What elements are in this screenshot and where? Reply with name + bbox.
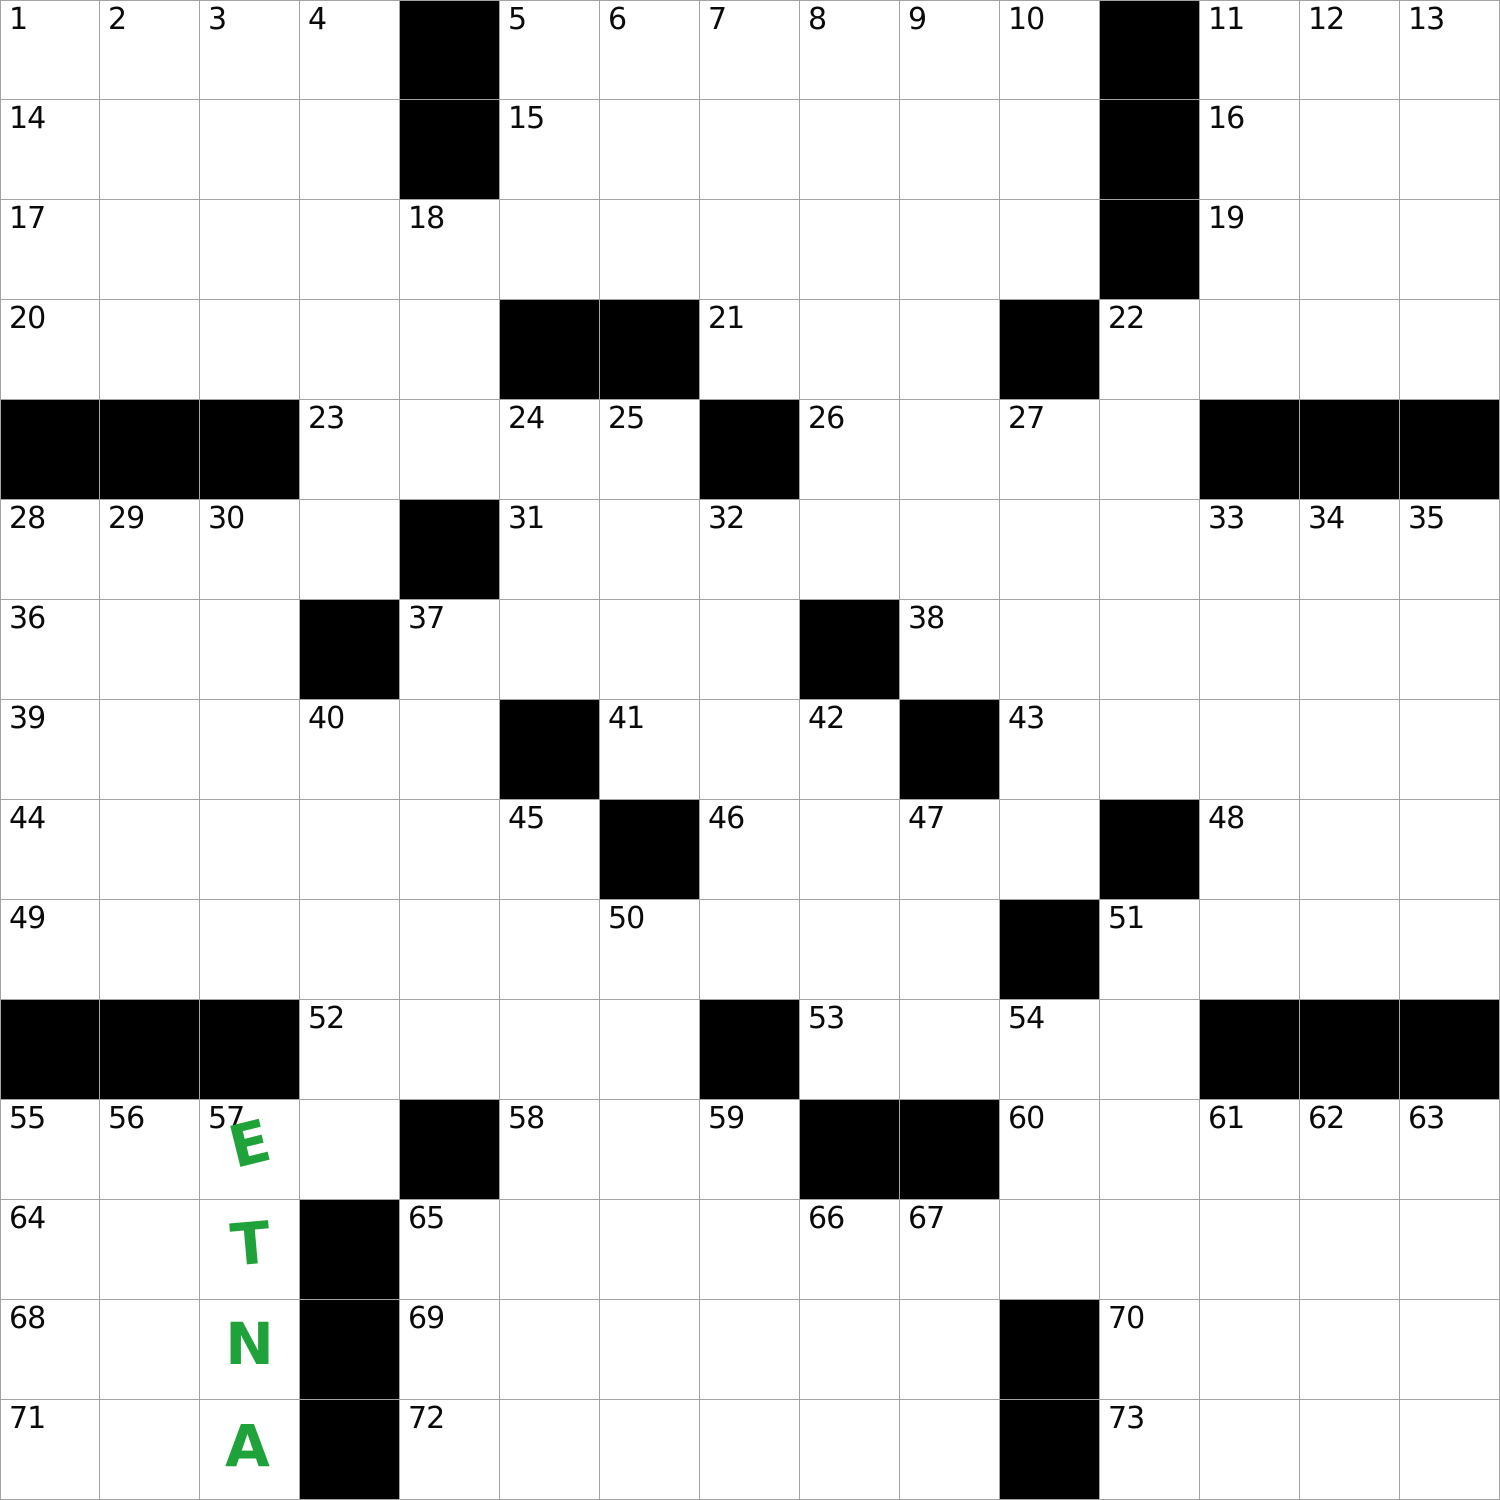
white-cell[interactable]: 58 xyxy=(500,1100,600,1200)
cell-number: 7 xyxy=(708,5,726,35)
cell-number: 49 xyxy=(9,904,45,934)
white-cell[interactable]: 72 xyxy=(400,1400,500,1500)
white-cell[interactable] xyxy=(1000,200,1100,300)
white-cell[interactable]: 53 xyxy=(800,1000,900,1100)
white-cell[interactable] xyxy=(900,1000,1000,1100)
white-cell[interactable]: 57E xyxy=(200,1100,300,1200)
black-cell xyxy=(100,1000,200,1100)
white-cell[interactable] xyxy=(1400,1200,1500,1300)
white-cell[interactable] xyxy=(500,900,600,1000)
white-cell[interactable] xyxy=(1400,900,1500,1000)
cell-number: 27 xyxy=(1008,404,1044,434)
white-cell[interactable] xyxy=(1100,600,1200,700)
white-cell[interactable] xyxy=(400,300,500,400)
white-cell[interactable] xyxy=(200,900,300,1000)
black-cell xyxy=(1200,1000,1300,1100)
cell-number: 68 xyxy=(9,1304,45,1334)
white-cell[interactable] xyxy=(900,400,1000,500)
cell-number: 11 xyxy=(1208,5,1244,35)
white-cell[interactable] xyxy=(1300,800,1400,900)
white-cell[interactable]: 28 xyxy=(0,500,100,600)
white-cell[interactable]: 39 xyxy=(0,700,100,800)
white-cell[interactable]: 42 xyxy=(800,700,900,800)
cell-number: 65 xyxy=(408,1204,444,1234)
cell-number: 56 xyxy=(108,1104,144,1134)
white-cell[interactable]: 12 xyxy=(1300,0,1400,100)
white-cell[interactable] xyxy=(600,200,700,300)
white-cell[interactable] xyxy=(800,200,900,300)
white-cell[interactable] xyxy=(1400,1300,1500,1400)
black-cell xyxy=(1000,900,1100,1000)
white-cell[interactable]: 52 xyxy=(300,1000,400,1100)
white-cell[interactable]: 73 xyxy=(1100,1400,1200,1500)
white-cell[interactable] xyxy=(1200,1400,1300,1500)
white-cell[interactable]: 22 xyxy=(1100,300,1200,400)
white-cell[interactable] xyxy=(100,1200,200,1300)
cell-number: 69 xyxy=(408,1304,444,1334)
white-cell[interactable]: 20 xyxy=(0,300,100,400)
white-cell[interactable] xyxy=(200,700,300,800)
white-cell[interactable]: 67 xyxy=(900,1200,1000,1300)
white-cell[interactable] xyxy=(1400,700,1500,800)
black-cell xyxy=(100,400,200,500)
white-cell[interactable]: 51 xyxy=(1100,900,1200,1000)
white-cell[interactable]: 19 xyxy=(1200,200,1300,300)
white-cell[interactable]: 55 xyxy=(0,1100,100,1200)
white-cell[interactable] xyxy=(1400,1400,1500,1500)
cell-number: 59 xyxy=(708,1104,744,1134)
white-cell[interactable] xyxy=(1300,900,1400,1000)
cell-number: 55 xyxy=(9,1104,45,1134)
cell-number: 41 xyxy=(608,704,644,734)
white-cell[interactable] xyxy=(1300,200,1400,300)
black-cell xyxy=(0,400,100,500)
white-cell[interactable] xyxy=(600,1300,700,1400)
cell-number: 31 xyxy=(508,504,544,534)
white-cell[interactable] xyxy=(700,1400,800,1500)
cell-number: 15 xyxy=(508,104,544,134)
white-cell[interactable] xyxy=(800,1300,900,1400)
crossword-grid: 1234567891011121314151617181920212223242… xyxy=(0,0,1500,1500)
white-cell[interactable] xyxy=(100,1400,200,1500)
white-cell[interactable] xyxy=(1200,600,1300,700)
white-cell[interactable] xyxy=(600,100,700,200)
white-cell[interactable]: 43 xyxy=(1000,700,1100,800)
white-cell[interactable]: T xyxy=(200,1200,300,1300)
white-cell[interactable]: 41 xyxy=(600,700,700,800)
white-cell[interactable] xyxy=(600,1400,700,1500)
white-cell[interactable] xyxy=(1300,1400,1400,1500)
white-cell[interactable] xyxy=(800,300,900,400)
white-cell[interactable] xyxy=(200,300,300,400)
white-cell[interactable]: 26 xyxy=(800,400,900,500)
white-cell[interactable] xyxy=(200,100,300,200)
white-cell[interactable] xyxy=(500,1300,600,1400)
white-cell[interactable] xyxy=(1400,200,1500,300)
white-cell[interactable] xyxy=(1300,300,1400,400)
white-cell[interactable] xyxy=(700,700,800,800)
white-cell[interactable] xyxy=(100,900,200,1000)
cell-number: 2 xyxy=(108,5,126,35)
cell-number: 32 xyxy=(708,504,744,534)
white-cell[interactable] xyxy=(200,800,300,900)
cell-number: 13 xyxy=(1408,5,1444,35)
cell-number: 1 xyxy=(9,5,27,35)
white-cell[interactable] xyxy=(700,1300,800,1400)
white-cell[interactable] xyxy=(900,100,1000,200)
cell-number: 34 xyxy=(1308,504,1344,534)
cell-number: 16 xyxy=(1208,104,1244,134)
white-cell[interactable]: 62 xyxy=(1300,1100,1400,1200)
white-cell[interactable]: 10 xyxy=(1000,0,1100,100)
cell-number: 35 xyxy=(1408,504,1444,534)
white-cell[interactable]: 66 xyxy=(800,1200,900,1300)
cell-number: 52 xyxy=(308,1004,344,1034)
white-cell[interactable]: 17 xyxy=(0,200,100,300)
white-cell[interactable] xyxy=(1400,800,1500,900)
white-cell[interactable] xyxy=(800,500,900,600)
white-cell[interactable]: 25 xyxy=(600,400,700,500)
white-cell[interactable] xyxy=(400,400,500,500)
white-cell[interactable]: 49 xyxy=(0,900,100,1000)
white-cell[interactable]: 70 xyxy=(1100,1300,1200,1400)
white-cell[interactable]: 23 xyxy=(300,400,400,500)
cell-number: 73 xyxy=(1108,1404,1144,1434)
black-cell xyxy=(400,500,500,600)
white-cell[interactable]: 7 xyxy=(700,0,800,100)
cell-number: 39 xyxy=(9,704,45,734)
white-cell[interactable]: 8 xyxy=(800,0,900,100)
white-cell[interactable] xyxy=(1100,1200,1200,1300)
cell-number: 25 xyxy=(608,404,644,434)
cell-number: 21 xyxy=(708,304,744,334)
cell-number: 12 xyxy=(1308,5,1344,35)
white-cell[interactable] xyxy=(1000,500,1100,600)
white-cell[interactable] xyxy=(100,700,200,800)
white-cell[interactable] xyxy=(1000,600,1100,700)
black-cell xyxy=(400,0,500,100)
white-cell[interactable] xyxy=(1400,300,1500,400)
white-cell[interactable]: 69 xyxy=(400,1300,500,1400)
cell-number: 19 xyxy=(1208,204,1244,234)
white-cell[interactable]: 24 xyxy=(500,400,600,500)
white-cell[interactable] xyxy=(1100,1100,1200,1200)
cell-number: 48 xyxy=(1208,804,1244,834)
white-cell[interactable] xyxy=(400,700,500,800)
black-cell xyxy=(500,300,600,400)
cell-number: 53 xyxy=(808,1004,844,1034)
white-cell[interactable]: 2 xyxy=(100,0,200,100)
cell-number: 42 xyxy=(808,704,844,734)
cell-number: 64 xyxy=(9,1204,45,1234)
black-cell xyxy=(1000,1400,1100,1500)
white-cell[interactable] xyxy=(300,300,400,400)
black-cell xyxy=(1300,400,1400,500)
black-cell xyxy=(500,700,600,800)
white-cell[interactable]: 56 xyxy=(100,1100,200,1200)
white-cell[interactable]: 3 xyxy=(200,0,300,100)
cell-number: 40 xyxy=(308,704,344,734)
white-cell[interactable] xyxy=(900,500,1000,600)
cell-number: 66 xyxy=(808,1204,844,1234)
black-cell xyxy=(800,600,900,700)
white-cell[interactable] xyxy=(600,500,700,600)
white-cell[interactable] xyxy=(700,900,800,1000)
black-cell xyxy=(1100,0,1200,100)
cell-number: 23 xyxy=(308,404,344,434)
white-cell[interactable] xyxy=(500,600,600,700)
white-cell[interactable]: 71 xyxy=(0,1400,100,1500)
cell-number: 36 xyxy=(9,604,45,634)
white-cell[interactable] xyxy=(800,800,900,900)
cell-number: 14 xyxy=(9,104,45,134)
cell-number: 30 xyxy=(208,504,244,534)
cell-number: 6 xyxy=(608,5,626,35)
cell-number: 24 xyxy=(508,404,544,434)
black-cell xyxy=(900,700,1000,800)
white-cell[interactable]: 18 xyxy=(400,200,500,300)
white-cell[interactable] xyxy=(300,1100,400,1200)
white-cell[interactable] xyxy=(900,900,1000,1000)
black-cell xyxy=(600,300,700,400)
cell-number: 3 xyxy=(208,5,226,35)
white-cell[interactable]: 9 xyxy=(900,0,1000,100)
white-cell[interactable] xyxy=(100,200,200,300)
cell-number: 61 xyxy=(1208,1104,1244,1134)
black-cell xyxy=(400,1100,500,1200)
cell-number: 4 xyxy=(308,5,326,35)
white-cell[interactable] xyxy=(500,200,600,300)
black-cell xyxy=(1400,400,1500,500)
black-cell xyxy=(700,400,800,500)
white-cell[interactable] xyxy=(100,1300,200,1400)
white-cell[interactable] xyxy=(600,600,700,700)
white-cell[interactable] xyxy=(700,600,800,700)
white-cell[interactable] xyxy=(500,1200,600,1300)
black-cell xyxy=(1100,800,1200,900)
white-cell[interactable]: 4 xyxy=(300,0,400,100)
white-cell[interactable]: 61 xyxy=(1200,1100,1300,1200)
white-cell[interactable] xyxy=(1300,700,1400,800)
cell-number: 33 xyxy=(1208,504,1244,534)
white-cell[interactable]: N xyxy=(200,1300,300,1400)
cell-number: 62 xyxy=(1308,1104,1344,1134)
white-cell[interactable] xyxy=(200,200,300,300)
black-cell xyxy=(700,1000,800,1100)
white-cell[interactable]: 44 xyxy=(0,800,100,900)
white-cell[interactable] xyxy=(1200,300,1300,400)
white-cell[interactable] xyxy=(400,1000,500,1100)
white-cell[interactable]: 54 xyxy=(1000,1000,1100,1100)
black-cell xyxy=(1400,1000,1500,1100)
white-cell[interactable] xyxy=(1300,1200,1400,1300)
black-cell xyxy=(400,100,500,200)
cell-number: 22 xyxy=(1108,304,1144,334)
white-cell[interactable] xyxy=(500,1000,600,1100)
black-cell xyxy=(200,400,300,500)
cell-number: 63 xyxy=(1408,1104,1444,1134)
cell-number: 20 xyxy=(9,304,45,334)
cell-number: 18 xyxy=(408,204,444,234)
white-cell[interactable]: 11 xyxy=(1200,0,1300,100)
cell-number: 50 xyxy=(608,904,644,934)
cell-number: 5 xyxy=(508,5,526,35)
white-cell[interactable] xyxy=(600,1100,700,1200)
white-cell[interactable] xyxy=(1200,1200,1300,1300)
white-cell[interactable] xyxy=(500,1400,600,1500)
black-cell xyxy=(1000,1300,1100,1400)
white-cell[interactable]: 59 xyxy=(700,1100,800,1200)
black-cell xyxy=(1000,300,1100,400)
white-cell[interactable] xyxy=(800,1400,900,1500)
white-cell[interactable] xyxy=(900,300,1000,400)
white-cell[interactable]: 63 xyxy=(1400,1100,1500,1200)
white-cell[interactable]: 45 xyxy=(500,800,600,900)
white-cell[interactable]: 21 xyxy=(700,300,800,400)
white-cell[interactable] xyxy=(200,600,300,700)
white-cell[interactable]: 34 xyxy=(1300,500,1400,600)
white-cell[interactable] xyxy=(100,100,200,200)
white-cell[interactable]: 47 xyxy=(900,800,1000,900)
white-cell[interactable] xyxy=(700,200,800,300)
white-cell[interactable]: 27 xyxy=(1000,400,1100,500)
white-cell[interactable] xyxy=(600,1000,700,1100)
white-cell[interactable] xyxy=(1300,100,1400,200)
white-cell[interactable]: 46 xyxy=(700,800,800,900)
white-cell[interactable] xyxy=(1300,1300,1400,1400)
white-cell[interactable]: 5 xyxy=(500,0,600,100)
white-cell[interactable] xyxy=(300,500,400,600)
cell-number: 54 xyxy=(1008,1004,1044,1034)
entry-letter: T xyxy=(197,1190,304,1297)
white-cell[interactable]: A xyxy=(200,1400,300,1500)
white-cell[interactable]: 48 xyxy=(1200,800,1300,900)
cell-number: 9 xyxy=(908,5,926,35)
white-cell[interactable] xyxy=(900,1300,1000,1400)
cell-number: 26 xyxy=(808,404,844,434)
cell-number: 47 xyxy=(908,804,944,834)
white-cell[interactable]: 6 xyxy=(600,0,700,100)
white-cell[interactable] xyxy=(1200,1300,1300,1400)
white-cell[interactable]: 32 xyxy=(700,500,800,600)
white-cell[interactable]: 33 xyxy=(1200,500,1300,600)
white-cell[interactable]: 16 xyxy=(1200,100,1300,200)
white-cell[interactable]: 65 xyxy=(400,1200,500,1300)
cell-number: 44 xyxy=(9,804,45,834)
white-cell[interactable] xyxy=(1000,100,1100,200)
black-cell xyxy=(300,1200,400,1300)
white-cell[interactable] xyxy=(700,100,800,200)
black-cell xyxy=(300,1400,400,1500)
white-cell[interactable] xyxy=(300,800,400,900)
cell-number: 29 xyxy=(108,504,144,534)
black-cell xyxy=(800,1100,900,1200)
white-cell[interactable] xyxy=(1000,800,1100,900)
white-cell[interactable] xyxy=(1300,600,1400,700)
white-cell[interactable]: 37 xyxy=(400,600,500,700)
white-cell[interactable] xyxy=(1200,900,1300,1000)
white-cell[interactable]: 1 xyxy=(0,0,100,100)
black-cell xyxy=(1300,1000,1400,1100)
black-cell xyxy=(900,1100,1000,1200)
black-cell xyxy=(1200,400,1300,500)
white-cell[interactable] xyxy=(400,800,500,900)
cell-number: 37 xyxy=(408,604,444,634)
white-cell[interactable]: 15 xyxy=(500,100,600,200)
white-cell[interactable] xyxy=(100,300,200,400)
white-cell[interactable]: 31 xyxy=(500,500,600,600)
white-cell[interactable]: 13 xyxy=(1400,0,1500,100)
white-cell[interactable] xyxy=(1100,500,1200,600)
white-cell[interactable]: 64 xyxy=(0,1200,100,1300)
black-cell xyxy=(0,1000,100,1100)
white-cell[interactable] xyxy=(800,900,900,1000)
white-cell[interactable]: 60 xyxy=(1000,1100,1100,1200)
white-cell[interactable]: 38 xyxy=(900,600,1000,700)
white-cell[interactable] xyxy=(1400,100,1500,200)
cell-number: 10 xyxy=(1008,5,1044,35)
white-cell[interactable] xyxy=(1400,600,1500,700)
cell-number: 43 xyxy=(1008,704,1044,734)
white-cell[interactable]: 14 xyxy=(0,100,100,200)
white-cell[interactable] xyxy=(700,1200,800,1300)
cell-number: 72 xyxy=(408,1404,444,1434)
black-cell xyxy=(300,1300,400,1400)
cell-number: 51 xyxy=(1108,904,1144,934)
white-cell[interactable] xyxy=(800,100,900,200)
cell-number: 38 xyxy=(908,604,944,634)
cell-number: 28 xyxy=(9,504,45,534)
cell-number: 71 xyxy=(9,1404,45,1434)
cell-number: 60 xyxy=(1008,1104,1044,1134)
white-cell[interactable] xyxy=(900,200,1000,300)
white-cell[interactable] xyxy=(100,600,200,700)
entry-letter: N xyxy=(200,1294,299,1393)
cell-number: 67 xyxy=(908,1204,944,1234)
black-cell xyxy=(1100,200,1200,300)
black-cell xyxy=(600,800,700,900)
white-cell[interactable] xyxy=(100,800,200,900)
white-cell[interactable] xyxy=(1100,700,1200,800)
white-cell[interactable]: 40 xyxy=(300,700,400,800)
cell-number: 70 xyxy=(1108,1304,1144,1334)
white-cell[interactable] xyxy=(1100,1000,1200,1100)
white-cell[interactable] xyxy=(1000,1200,1100,1300)
white-cell[interactable] xyxy=(1200,700,1300,800)
white-cell[interactable] xyxy=(300,200,400,300)
white-cell[interactable] xyxy=(600,1200,700,1300)
black-cell xyxy=(1100,100,1200,200)
white-cell[interactable]: 30 xyxy=(200,500,300,600)
cell-number: 17 xyxy=(9,204,45,234)
white-cell[interactable] xyxy=(900,1400,1000,1500)
white-cell[interactable] xyxy=(400,900,500,1000)
white-cell[interactable]: 36 xyxy=(0,600,100,700)
white-cell[interactable]: 68 xyxy=(0,1300,100,1400)
entry-letter: A xyxy=(198,1396,297,1495)
white-cell[interactable] xyxy=(1100,400,1200,500)
cell-number: 58 xyxy=(508,1104,544,1134)
cell-number: 46 xyxy=(708,804,744,834)
white-cell[interactable] xyxy=(300,100,400,200)
cell-number: 8 xyxy=(808,5,826,35)
white-cell[interactable]: 35 xyxy=(1400,500,1500,600)
white-cell[interactable]: 50 xyxy=(600,900,700,1000)
black-cell xyxy=(300,600,400,700)
white-cell[interactable] xyxy=(300,900,400,1000)
cell-number: 45 xyxy=(508,804,544,834)
white-cell[interactable]: 29 xyxy=(100,500,200,600)
